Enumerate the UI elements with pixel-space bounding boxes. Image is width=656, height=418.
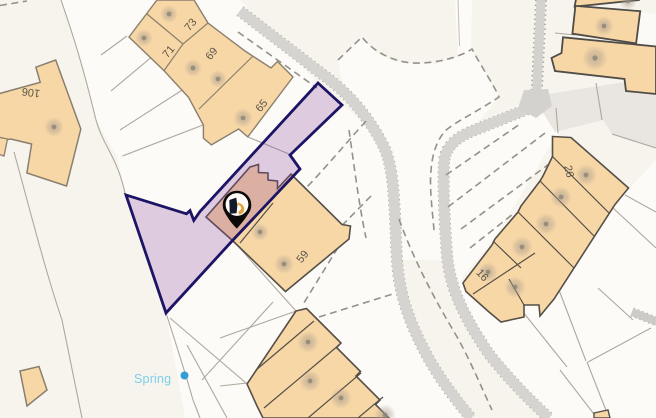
svg-text:26: 26	[561, 164, 575, 178]
svg-text:Spring: Spring	[134, 372, 171, 386]
svg-text:106: 106	[21, 85, 41, 99]
